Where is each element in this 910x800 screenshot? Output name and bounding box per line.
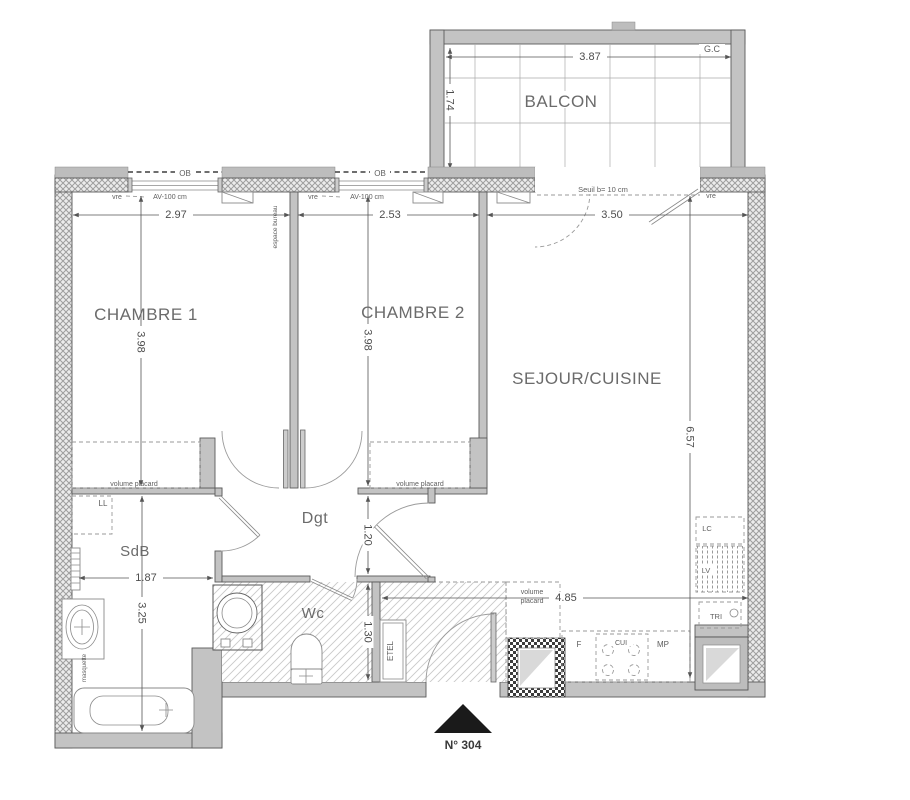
radiator-chambre1 [222,192,253,203]
placard-entry-line2: placard [521,598,544,605]
right-appliances: LC LV TRI [696,517,744,628]
etel-label: ETEL [386,640,395,661]
svg-text:1.87: 1.87 [135,572,156,584]
bathtub [74,688,194,733]
espace-bureau-label: espace bureau [272,205,279,248]
balcony-wall-right [731,30,745,175]
floor-plan-page: 3.87 1.74 G.C BALCON [0,0,910,800]
svg-text:3.98: 3.98 [362,329,374,350]
washer-unit [213,585,262,650]
svg-text:2.97: 2.97 [165,209,186,221]
wall-sdb-dgt-a [215,488,222,496]
room-label-sejour: SEJOUR/CUISINE [512,369,662,388]
balcony-wall-left [430,30,444,175]
kitchen-row: F CUI MP [562,631,690,682]
dim-chambre2-height: 3.98 [362,196,374,486]
svg-text:3.50: 3.50 [601,209,622,221]
fridge-label: F [577,640,582,649]
svg-text:4.85: 4.85 [555,592,576,604]
door-swing-chambre2 [305,431,362,488]
dim-chambre2-width: 2.53 [298,209,479,221]
dim-dgt-width: 1.20 [362,496,374,574]
lv-label: LV [702,566,711,575]
vre-label-3: vre [706,193,716,200]
entrance-marker: N° 304 [434,704,492,752]
balcony-notch [612,22,635,30]
door-swing-sdb [221,535,260,551]
room-label-wc: Wc [302,605,325,622]
windows: OB OB vre AV-100 cm vre AV-100 cm vre Se… [112,167,716,247]
mp-label: MP [657,640,669,649]
wall-chambre1-chambre2 [290,192,298,488]
toilet [291,634,322,684]
etel-duct: ETEL [380,620,406,682]
svg-text:6.57: 6.57 [684,426,696,447]
radiator-sdb [71,548,80,590]
entrance-triangle [434,704,492,733]
svg-text:3.25: 3.25 [136,602,148,623]
door-leaf-sejour [375,525,430,579]
radiator-chambre2 [413,192,443,203]
room-label-balcon: BALCON [525,92,598,111]
room-label-sdb: SdB [120,543,150,560]
door-leaf-entrance [491,613,496,682]
corner-duct [695,625,748,690]
vre-label-1: vre [112,194,122,201]
room-label-chambre2: CHAMBRE 2 [361,303,465,322]
masquette-label: masquette [82,653,88,682]
balcony-dim-width: 3.87 [446,51,731,63]
wall-step-sdb [192,648,222,748]
wall-chambre1-sdb [72,488,222,494]
balcony-door-leaf [649,189,701,225]
dim-sdb-width: 1.87 [79,572,213,584]
room-label-chambre1: CHAMBRE 1 [94,305,198,324]
room-label-dgt: Dgt [302,510,328,527]
wall-dgt-sejour-a [428,488,435,503]
cooktop-label: CUI [615,640,627,647]
entry-shaft [508,638,565,697]
tri-label: TRI [710,612,722,621]
seuil-label: Seuil b= 10 cm [578,185,628,194]
door-leaf-chambre1 [284,430,289,488]
dim-chambre1-width: 2.97 [73,209,290,221]
wall-right [748,175,765,697]
av-label-1: AV-100 cm [153,194,187,201]
balcony-depth-value: 1.74 [444,89,456,110]
door-leaf-sdb [219,496,260,537]
placard-label-chambre1: volume placard [110,481,158,488]
vre-label-2: vre [308,194,318,201]
wall-chambre2-dgt [358,488,487,494]
placard-block-chambre2 [470,438,487,488]
balcony-dim-depth: 1.74 [444,48,456,169]
wall-dgt-wc-b [357,576,430,582]
svg-text:1.30: 1.30 [362,621,374,642]
av-label-2: AV-100 cm [350,194,384,201]
balcony-door-swing [535,192,590,247]
door-leaf-chambre2 [301,430,306,488]
balcony-door-sejour [535,167,701,247]
placard-block-chambre1 [200,438,215,488]
wall-left [55,175,72,748]
balcony-corner-label: G.C [704,44,721,54]
wall-sdb-dgt-b [215,551,222,582]
lc-label: LC [702,524,712,533]
dim-chambre1-height: 3.98 [135,196,147,486]
balcony: 3.87 1.74 G.C BALCON [430,22,745,175]
wall-bottom-center [222,682,426,697]
placard-label-chambre2: volume placard [396,481,444,488]
svg-text:2.53: 2.53 [379,209,400,221]
wall-dgt-wc-a [222,576,310,582]
placard-entry-line1: volume [521,589,544,596]
wall-dgt-sejour-b [428,577,435,582]
unit-number: N° 304 [445,738,482,752]
washbasin [62,599,104,659]
balcony-wall-top [430,30,745,44]
floor-plan: 3.87 1.74 G.C BALCON [0,0,910,800]
dim-sejour-top-width: 3.50 [487,209,748,221]
ob-label-2: OB [374,169,386,178]
svg-text:1.20: 1.20 [362,524,374,545]
door-swing-chambre1 [222,431,279,488]
ll-label: LL [99,499,108,508]
balcony-width-value: 3.87 [579,51,600,63]
svg-text:3.98: 3.98 [135,331,147,352]
radiator-sejour [497,192,530,203]
ob-label-1: OB [179,169,191,178]
dim-sejour-height: 6.57 [684,196,696,678]
